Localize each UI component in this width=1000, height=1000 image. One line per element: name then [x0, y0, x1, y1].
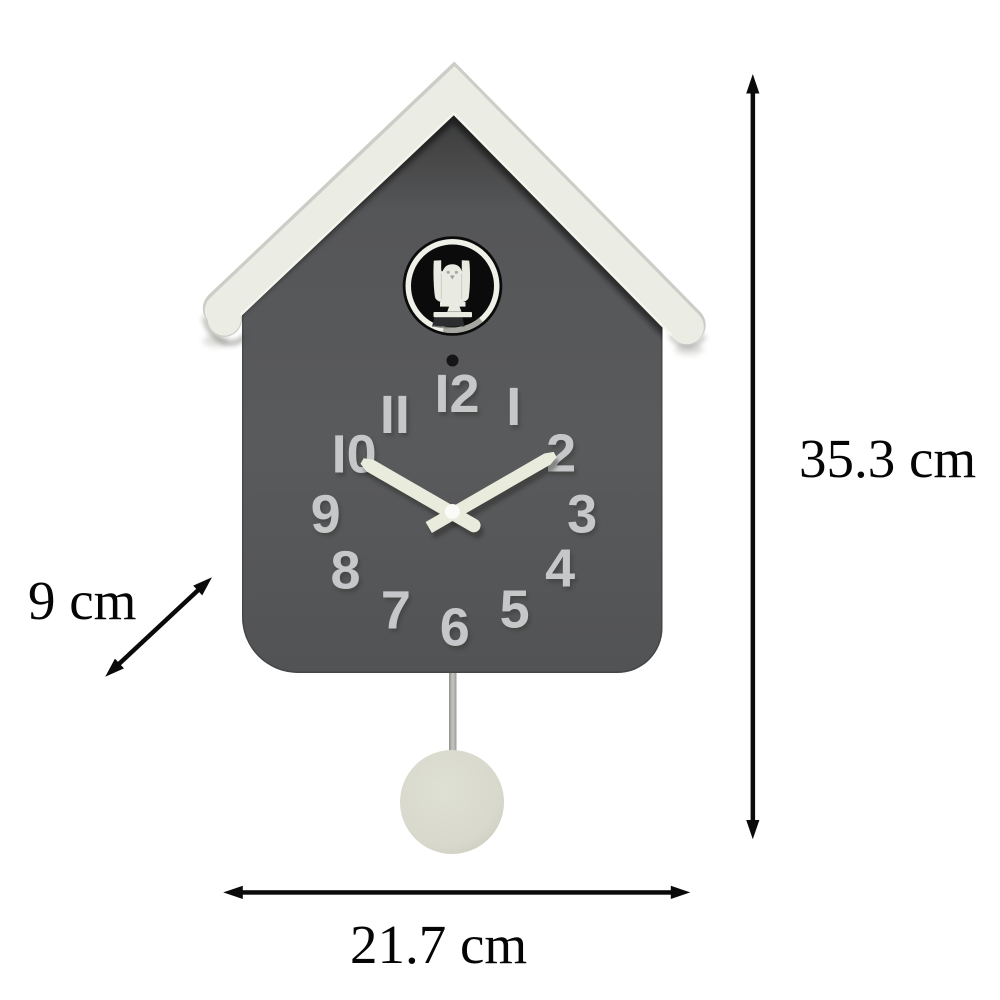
svg-text:I2: I2: [434, 364, 479, 424]
svg-text:I: I: [506, 377, 521, 437]
svg-text:6: 6: [440, 598, 470, 658]
svg-text:4: 4: [545, 539, 575, 599]
svg-text:5: 5: [500, 580, 530, 640]
svg-text:II: II: [380, 385, 410, 445]
svg-text:35.3 cm: 35.3 cm: [799, 428, 976, 489]
svg-text:9 cm: 9 cm: [28, 570, 136, 631]
svg-text:7: 7: [381, 580, 411, 640]
svg-text:21.7 cm: 21.7 cm: [350, 914, 527, 975]
svg-text:8: 8: [330, 541, 360, 601]
svg-text:3: 3: [567, 485, 597, 545]
svg-text:9: 9: [311, 485, 341, 545]
